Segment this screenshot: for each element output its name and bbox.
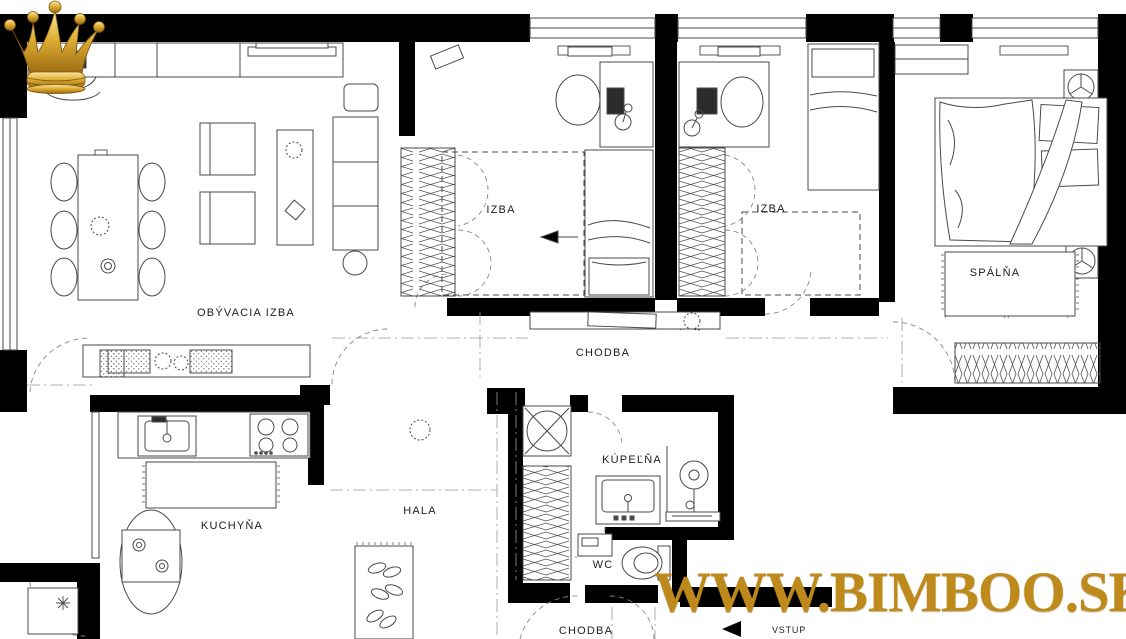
rug-icon [277,130,313,245]
shelf-icon [568,47,612,56]
rug-outline [442,152,584,295]
desk-chair-icon [556,75,600,125]
vanity-icon [596,476,660,524]
sofa-icon [333,117,378,250]
floor-plan-drawing [0,0,1126,639]
table-top-icon [122,530,180,582]
picture-frame-icon [430,45,463,69]
hala-furniture [355,420,430,639]
small-sink-icon [578,534,612,556]
runner-rug-icon [355,546,413,639]
room-label-izba-2: IZBA [756,203,785,215]
room-label-kuchyna: KUCHYŇA [201,520,263,532]
room-label-hala: HALA [403,505,437,517]
balcony-furniture [28,588,78,634]
room-label-spalna: SPÁLŇA [970,267,1021,279]
chodba-furniture [530,312,720,329]
plant-icon [410,420,430,440]
kitchen-furniture [118,412,310,614]
pillow-icon [812,49,874,77]
armchair-icon [200,192,255,244]
doormat-icon [100,350,124,377]
izba1-furniture [401,45,653,297]
bedroom-rug-icon [945,252,1075,316]
kitchen-rug-icon [146,462,276,508]
sofa-cushion-icon [344,84,378,111]
room-label-chodba-top: CHODBA [576,347,630,359]
balcony-table-icon [28,588,78,634]
shelf-icon [718,47,760,56]
direction-arrow-icon [541,231,558,243]
chair-icon [139,163,165,201]
wardrobe-icon [679,148,725,296]
computer-icon [607,88,624,114]
doormat-icon [190,350,232,373]
room-label-kupelna: KÚPEĽŇA [602,454,662,466]
room-label-chodba-bottom: CHODBA [559,625,613,637]
chair-icon [51,211,77,249]
armchair-icon [200,123,255,175]
room-label-izba-1: IZBA [486,204,515,216]
chair-icon [51,258,77,296]
cushion-icon [588,312,656,328]
wardrobe-icon [401,148,455,296]
hob-icon [250,414,308,456]
wardrobe-icon [955,343,1100,383]
rug-outline [742,212,860,295]
chair-icon [139,258,165,296]
room-label-wc: WC [593,559,614,571]
room-label-vstup: VSTUP [772,625,806,635]
chair-icon [51,163,77,201]
shower-head-icon [680,461,708,489]
wardrobe-icon [523,466,571,580]
izba2-furniture [679,44,879,330]
utility-furniture [523,406,571,580]
ottoman-icon [343,251,367,275]
chair-icon [139,211,165,249]
room-label-obyvacia-izba: OBÝVACIA IZBA [197,307,295,319]
floor-plan: OBÝVACIA IZBA IZBA IZBA SPÁLŇA CHODBA KU… [0,0,1126,639]
desk-chair-icon [721,77,763,127]
spalna-furniture [895,45,1107,383]
watermark-url: WWW.BIMBOO.SK [654,564,1126,621]
asterisk-icon [56,596,70,610]
dining-table-icon [78,155,138,300]
crown-icon [0,0,112,96]
